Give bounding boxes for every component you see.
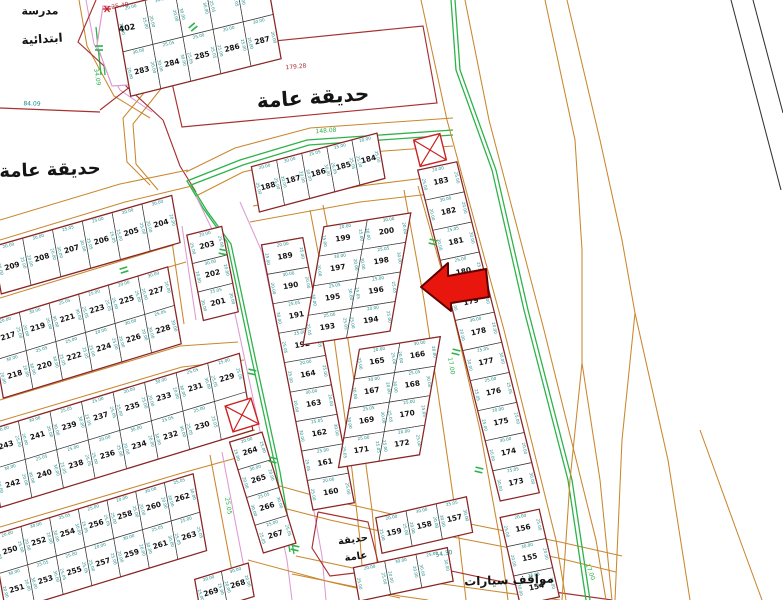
- block-264: 25.0025.0020.0020.0020.0030.0030.0030.00…: [230, 432, 296, 553]
- col-183: 25.0025.0020.0020.0020.0030.0030.0030.00…: [418, 162, 540, 501]
- label-school-line1: مدرسة: [22, 5, 59, 18]
- label-public-garden-top: حديقة عامة: [256, 81, 370, 113]
- dim-text: 17.00: [446, 357, 456, 375]
- dim-text: 148.08: [315, 127, 337, 135]
- road-line-red: [0, 108, 100, 112]
- utility-tick-icon: [291, 545, 300, 551]
- label-small-park-1: حديقة: [337, 532, 368, 547]
- block-center: 25.0025.0020.0020.0020.0030.0020.0020.00…: [303, 213, 411, 345]
- road-line-road: [700, 430, 762, 600]
- road-line-road: [635, 313, 690, 600]
- substation-xbox-icon: [414, 134, 447, 167]
- road-line-black: [753, 0, 783, 113]
- dim-text: 84.09: [23, 100, 41, 108]
- road-line-red: [163, 120, 196, 192]
- cadastral-map-viewport: 25.0025.0020.0020.0020.0030.0030.0030.00…: [0, 0, 783, 600]
- utility-tick-icon: [475, 467, 484, 473]
- block-203: 25.0025.0020.0020.0020.0030.0030.0030.00…: [187, 226, 239, 320]
- utility-tick-icon: [452, 349, 461, 355]
- label-public-garden-left: حديقة عامة: [0, 158, 101, 183]
- label-small-park-2: عامة: [344, 550, 368, 564]
- cadastral-map: 25.0025.0020.0020.0020.0030.0030.0030.00…: [0, 0, 783, 600]
- row-159: 25.0025.0020.0020.0020.0030.0030.0030.00…: [376, 497, 473, 553]
- road-line-road: [567, 0, 635, 600]
- block-268: 25.0025.0020.0020.0020.0030.00269268: [195, 563, 254, 600]
- dim-text: 179.28: [285, 63, 307, 72]
- block-283: 25.0025.0020.0020.0020.0030.0030.0030.00…: [115, 0, 281, 96]
- label-school-line2: ابتدائية: [21, 31, 63, 48]
- road-line-black: [731, 0, 781, 190]
- utility-tick-icon: [120, 267, 129, 273]
- block-165: 25.0025.0020.0020.0020.0030.0020.0020.00…: [339, 337, 441, 468]
